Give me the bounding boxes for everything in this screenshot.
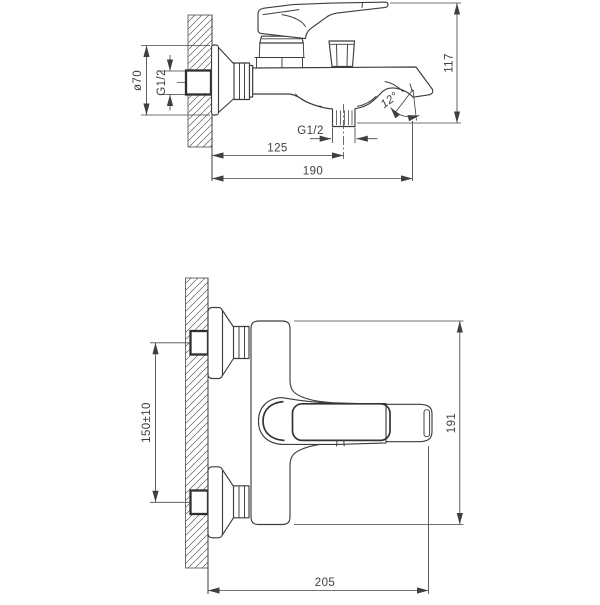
dim-inlet-spacing: 150±10 — [141, 402, 153, 443]
dim-wall-to-spout-tip: 190 — [303, 166, 323, 178]
side-view: ø70 G1/2 117 12° G1/2 125 — [132, 2, 461, 181]
dim-inlet-thread: G1/2 — [156, 69, 168, 96]
dim-wall-to-handle-tip: 205 — [315, 577, 335, 589]
dim-shower-outlet-thread: G1/2 — [297, 125, 324, 137]
dim-spout-angle: 12° — [379, 90, 401, 111]
wall-pipe-plan-upper — [191, 331, 209, 355]
dim-escutcheon-diameter: ø70 — [132, 70, 144, 91]
mixer-installation-drawing: ø70 G1/2 117 12° G1/2 125 — [0, 0, 600, 600]
plan-view: 150±10 191 205 — [141, 278, 464, 594]
eccentric-connector-plan-lower — [208, 467, 249, 538]
wall-pipe-plan-lower — [191, 491, 209, 515]
diverter-knob — [329, 41, 355, 67]
eccentric-connector-plan-upper — [208, 308, 249, 379]
eccentric-connector-side — [212, 45, 253, 115]
dim-wall-to-outlet: 125 — [267, 143, 287, 155]
wall-section-plan — [186, 278, 209, 594]
wall-pipe-side — [186, 71, 211, 95]
mixer-body-side — [253, 67, 433, 127]
dim-overall-height: 117 — [444, 53, 456, 73]
dim-overall-length: 191 — [446, 413, 458, 433]
technical-drawing-page: ø70 G1/2 117 12° G1/2 125 — [0, 0, 600, 600]
lever-handle-side — [258, 2, 388, 39]
wall-section-side — [188, 15, 212, 181]
cartridge-housing — [255, 43, 305, 68]
